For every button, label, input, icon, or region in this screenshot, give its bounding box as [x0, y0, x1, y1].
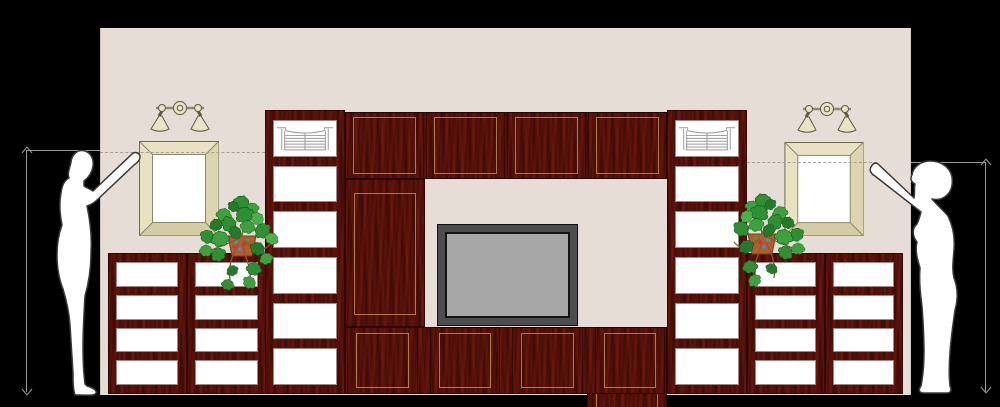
base-cabinet-door[interactable] [347, 327, 418, 394]
left-dimension-line [26, 150, 27, 392]
shelf-opening [273, 348, 337, 385]
male-figure[interactable] [44, 146, 144, 398]
wire-basket[interactable] [676, 121, 738, 156]
right-reach-line [747, 162, 877, 163]
shelf-opening [195, 328, 258, 353]
upper-cabinet-door[interactable] [507, 112, 586, 179]
right-dimension-line [985, 162, 986, 392]
shelf-opening [675, 303, 739, 340]
upper-cabinet-door[interactable] [345, 112, 424, 179]
tv[interactable] [437, 224, 578, 326]
shelf-opening [755, 328, 816, 353]
left-sconce[interactable] [150, 97, 210, 135]
right-sconce[interactable] [797, 98, 857, 136]
upper-cabinet-door[interactable] [588, 112, 667, 179]
upper-cabinet-door[interactable] [426, 112, 505, 179]
base-cabinet-door[interactable] [512, 327, 583, 394]
arrow-up-icon [980, 158, 992, 166]
female-figure[interactable] [864, 158, 968, 396]
upper-cabinet-row [345, 112, 667, 179]
base-cabinet-row [345, 327, 667, 394]
base-cabinet-door[interactable] [595, 327, 666, 394]
base-cabinet-door[interactable] [430, 327, 501, 394]
wire-basket[interactable] [274, 121, 336, 156]
right-ivy-plant[interactable] [712, 190, 812, 290]
elevation-canvas [0, 0, 1000, 407]
basket-shelf-opening [675, 120, 739, 157]
shelf-opening [675, 348, 739, 385]
arrow-down-icon [980, 386, 992, 394]
shelf-opening [195, 295, 258, 320]
shelf-opening [755, 360, 816, 385]
left-side-panel[interactable] [345, 179, 425, 327]
left-ivy-plant[interactable] [192, 192, 292, 292]
shelf-opening [195, 360, 258, 385]
arrow-down-icon [21, 388, 33, 396]
tv-screen [445, 232, 570, 318]
shelf-opening [273, 303, 337, 340]
shelf-opening [755, 295, 816, 320]
arrow-up-icon [21, 146, 33, 154]
basket-shelf-opening [273, 120, 337, 157]
